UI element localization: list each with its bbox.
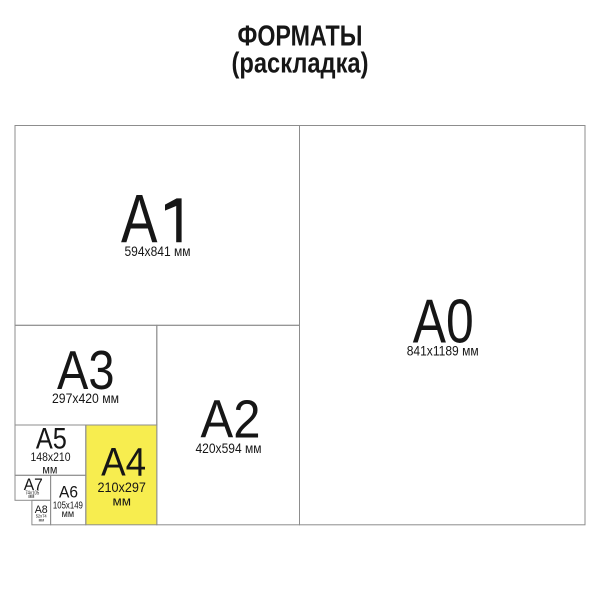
- svg-text:мм: мм: [113, 494, 132, 508]
- svg-text:мм: мм: [39, 518, 45, 523]
- svg-text:297x420 мм: 297x420 мм: [52, 390, 119, 406]
- svg-text:(раскладка): (раскладка): [232, 47, 369, 79]
- svg-text:210x297: 210x297: [97, 479, 146, 495]
- svg-text:мм: мм: [62, 509, 75, 520]
- svg-text:мм: мм: [42, 464, 57, 476]
- svg-text:594x841 мм: 594x841 мм: [125, 243, 191, 259]
- svg-text:148x210: 148x210: [31, 452, 71, 464]
- svg-text:A6: A6: [59, 484, 78, 502]
- svg-text:420x594 мм: 420x594 мм: [196, 440, 262, 456]
- svg-text:841x1189 мм: 841x1189 мм: [407, 343, 479, 359]
- svg-text:A5: A5: [36, 423, 67, 456]
- svg-text:мм: мм: [28, 494, 34, 500]
